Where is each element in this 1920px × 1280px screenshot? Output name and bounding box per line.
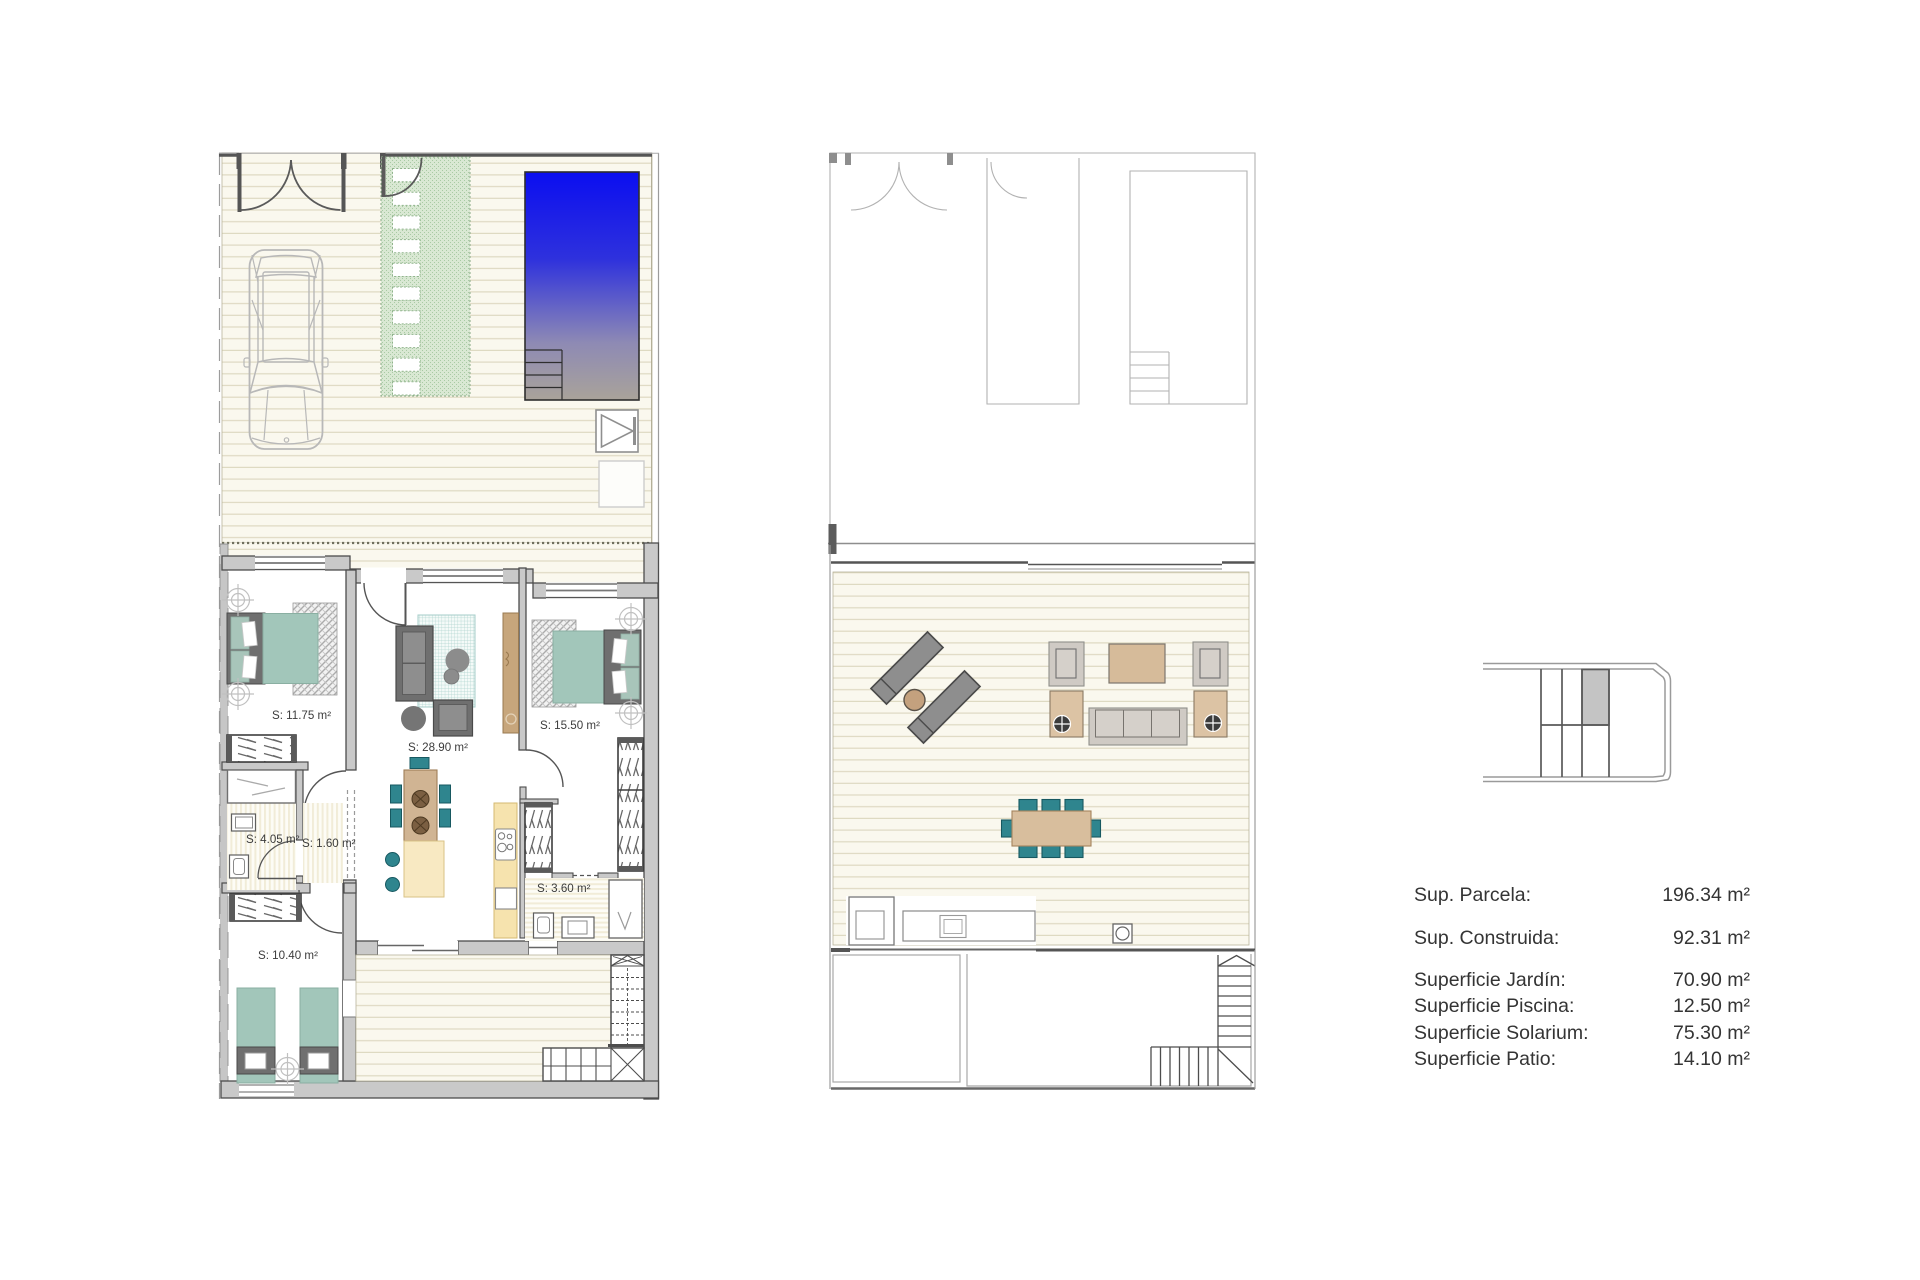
svg-text:Superficie Piscina:: Superficie Piscina: (1414, 995, 1574, 1017)
svg-text:196.34 m²: 196.34 m² (1662, 884, 1750, 906)
svg-text:Superficie Patio:: Superficie Patio: (1414, 1048, 1556, 1070)
svg-text:Superficie Solarium:: Superficie Solarium: (1414, 1022, 1589, 1044)
svg-text:75.30 m²: 75.30 m² (1673, 1022, 1750, 1044)
svg-text:12.50 m²: 12.50 m² (1673, 995, 1750, 1017)
svg-text:S: 15.50 m²: S: 15.50 m² (540, 719, 600, 732)
svg-text:S: 4.05 m²: S: 4.05 m² (246, 833, 300, 846)
svg-text:S: 10.40 m²: S: 10.40 m² (258, 949, 318, 962)
svg-text:14.10 m²: 14.10 m² (1673, 1048, 1750, 1070)
svg-text:Superficie Jardín:: Superficie Jardín: (1414, 969, 1566, 991)
svg-text:S: 28.90 m²: S: 28.90 m² (408, 741, 468, 754)
svg-text:92.31 m²: 92.31 m² (1673, 927, 1750, 949)
svg-text:Sup. Parcela:: Sup. Parcela: (1414, 884, 1531, 906)
svg-text:70.90 m²: 70.90 m² (1673, 969, 1750, 991)
svg-text:Sup. Construida:: Sup. Construida: (1414, 927, 1559, 949)
svg-text:S: 11.75 m²: S: 11.75 m² (272, 709, 331, 722)
svg-text:S: 3.60 m²: S: 3.60 m² (537, 882, 591, 895)
svg-text:S: 1.60 m²: S: 1.60 m² (302, 837, 356, 850)
